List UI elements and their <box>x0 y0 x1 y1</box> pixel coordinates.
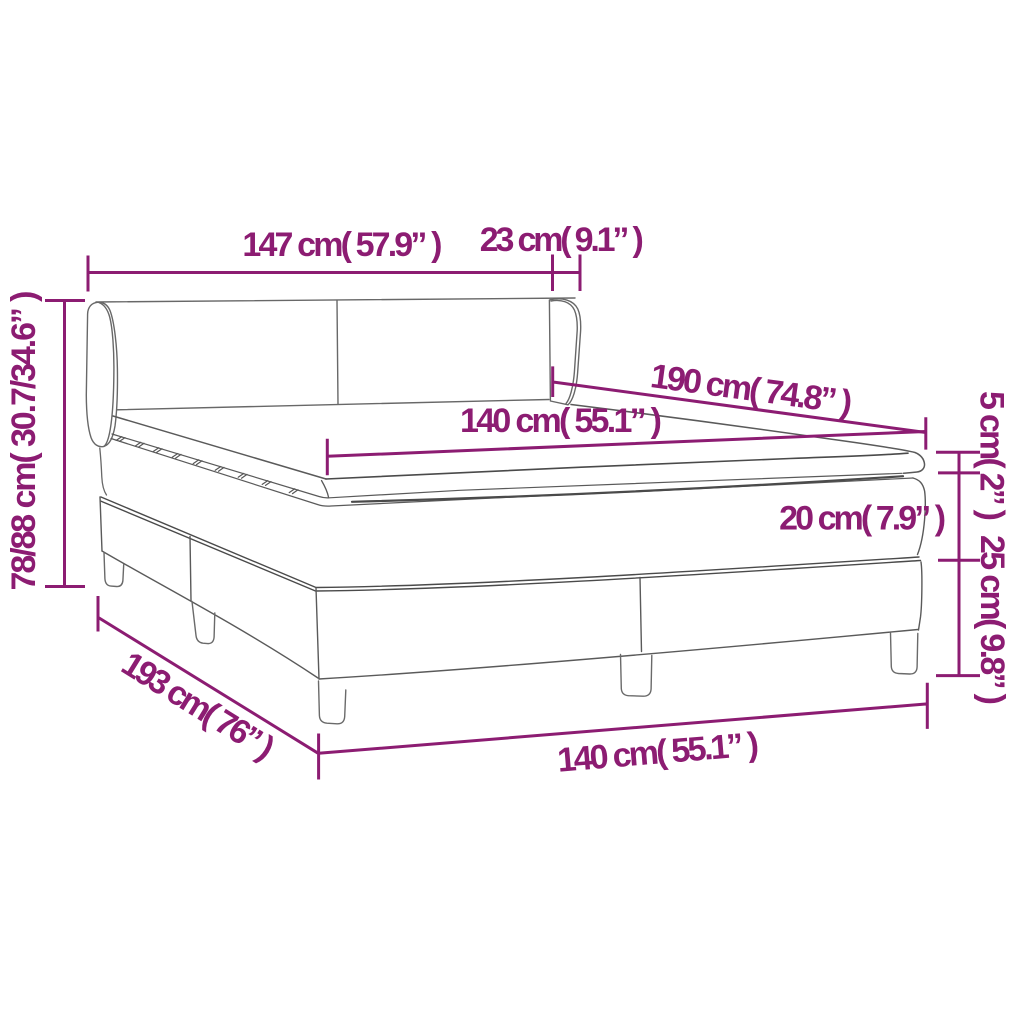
svg-text:147 cm( 57.9” ): 147 cm( 57.9” ) <box>242 226 442 264</box>
svg-text:23 cm( 9.1” ): 23 cm( 9.1” ) <box>480 221 644 259</box>
svg-text:193 cm( 76” ): 193 cm( 76” ) <box>115 645 281 768</box>
svg-text:78/88 cm( 30.7/34.6” ): 78/88 cm( 30.7/34.6” ) <box>5 291 43 591</box>
svg-text:140 cm( 55.1” ): 140 cm( 55.1” ) <box>556 725 760 779</box>
svg-text:25 cm( 9.8” ): 25 cm( 9.8” ) <box>973 535 1011 705</box>
svg-text:20 cm( 7.9” ): 20 cm( 7.9” ) <box>779 499 946 537</box>
svg-text:190 cm( 74.8” ): 190 cm( 74.8” ) <box>648 357 854 422</box>
svg-text:140 cm( 55.1” ): 140 cm( 55.1” ) <box>460 402 662 440</box>
svg-text:5 cm( 2” ): 5 cm( 2” ) <box>973 391 1011 521</box>
